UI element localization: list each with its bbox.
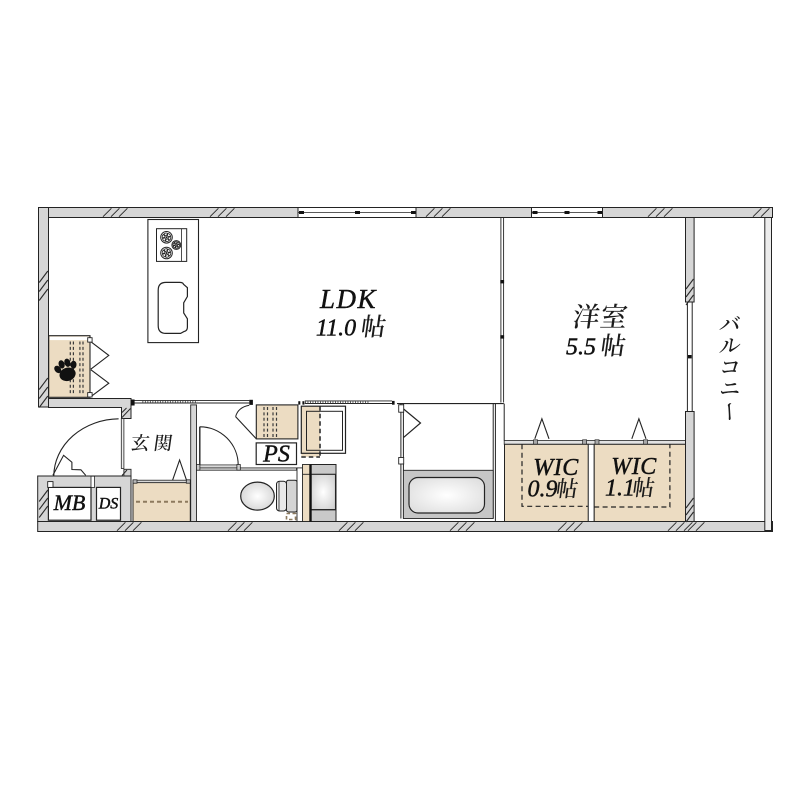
svg-text:PS: PS bbox=[262, 442, 290, 468]
svg-text:LDK: LDK bbox=[319, 284, 378, 314]
svg-text:DS: DS bbox=[98, 496, 119, 513]
svg-text:5.5: 5.5 bbox=[566, 335, 596, 361]
svg-text:1.1: 1.1 bbox=[605, 476, 635, 502]
svg-text:0.9: 0.9 bbox=[528, 477, 558, 503]
svg-text:11.0: 11.0 bbox=[316, 316, 356, 342]
svg-text:MB: MB bbox=[53, 490, 86, 515]
